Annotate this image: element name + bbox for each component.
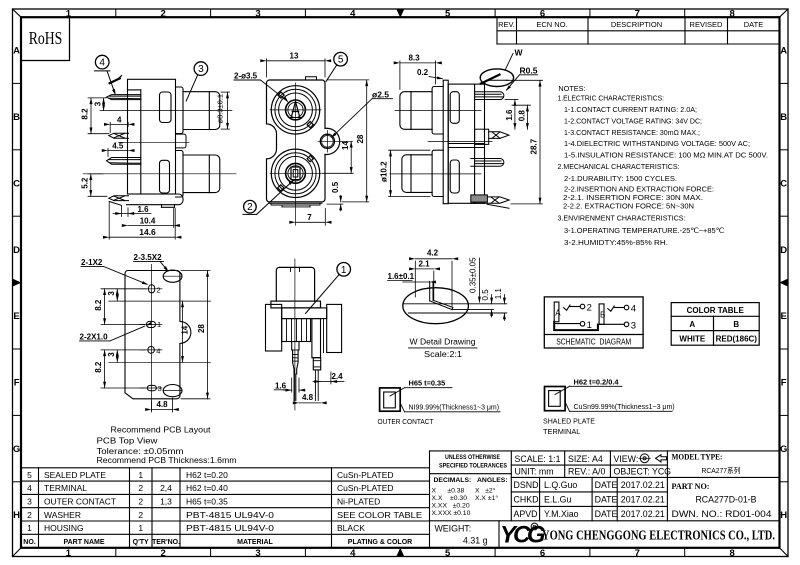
svg-text:A: A [13, 46, 20, 57]
svg-text:W Detail Drawing: W Detail Drawing [410, 337, 476, 346]
svg-text:1-2.CONTACT VOLTAGE RATING:: 1-2.CONTACT VOLTAGE RATING: 34V DC; [564, 116, 702, 125]
svg-text:B: B [780, 112, 787, 123]
svg-text:A: A [689, 320, 695, 329]
svg-text:X ±0.38: X ±0.38 [432, 487, 465, 494]
svg-text:G: G [780, 444, 787, 455]
svg-text:2: 2 [138, 510, 143, 520]
svg-text:5: 5 [27, 470, 32, 480]
svg-text:2-2X1.0: 2-2X1.0 [80, 333, 109, 342]
svg-text:3: 3 [107, 352, 116, 357]
svg-text:6: 6 [540, 548, 545, 559]
svg-text:VIEW:: VIEW: [614, 454, 639, 464]
svg-text:4: 4 [27, 483, 32, 493]
svg-text:CuSn-PLATED: CuSn-PLATED [337, 483, 394, 493]
svg-text:0.2: 0.2 [417, 68, 429, 77]
svg-text:3: 3 [158, 384, 162, 393]
svg-text:H62 t=0.2/0.4: H62 t=0.2/0.4 [574, 377, 620, 386]
svg-text:6: 6 [540, 8, 545, 19]
svg-text:APVD: APVD [514, 509, 538, 519]
svg-text:WEIGHT:: WEIGHT: [435, 524, 472, 534]
svg-text:2-1X2: 2-1X2 [81, 258, 103, 267]
svg-text:E.L.Gu: E.L.Gu [544, 495, 571, 505]
svg-text:3: 3 [107, 291, 116, 296]
svg-text:F: F [781, 378, 787, 389]
svg-text:Recommend PCB Layout: Recommend PCB Layout [111, 425, 212, 434]
svg-text:2-1.DURABILITY: 1500 CYCLES.: 2-1.DURABILITY: 1500 CYCLES. [564, 174, 677, 183]
svg-text:ø10.2: ø10.2 [380, 161, 389, 182]
svg-text:4.5: 4.5 [112, 142, 124, 151]
svg-text:R0.5: R0.5 [520, 66, 538, 76]
svg-text:7: 7 [307, 213, 312, 222]
svg-text:X.X ±1°: X.X ±1° [475, 494, 498, 502]
svg-text:1-5.INSULATION RESISTANCE: 1: 1-5.INSULATION RESISTANCE: 100 MΩ MIN.AT… [564, 151, 768, 160]
svg-text:Scale:2:1: Scale:2:1 [424, 350, 463, 359]
svg-text:1.1: 1.1 [494, 288, 503, 300]
svg-text:0.5: 0.5 [331, 181, 340, 193]
svg-text:TERMINAL: TERMINAL [543, 427, 580, 436]
svg-text:DESCRIPTION: DESCRIPTION [611, 20, 662, 29]
svg-text:WHITE: WHITE [679, 335, 705, 344]
svg-text:3: 3 [198, 64, 204, 75]
svg-text:PART NAME: PART NAME [63, 539, 104, 546]
svg-text:1: 1 [66, 548, 72, 559]
svg-text:UNLESS OTHERWISE: UNLESS OTHERWISE [445, 454, 500, 461]
svg-text:4: 4 [350, 8, 356, 19]
svg-text:7: 7 [635, 548, 640, 559]
svg-text:RCA277系列: RCA277系列 [702, 466, 741, 475]
svg-text:RED(186C): RED(186C) [716, 335, 758, 344]
svg-text:1.6: 1.6 [505, 109, 514, 121]
svg-text:H65 t=0.35: H65 t=0.35 [186, 497, 228, 507]
svg-text:PCB Top View: PCB Top View [97, 436, 158, 445]
svg-text:5: 5 [338, 55, 344, 66]
svg-text:MATERIAL: MATERIAL [237, 539, 273, 546]
svg-text:H: H [780, 510, 787, 521]
svg-text:H62 t=0.40: H62 t=0.40 [186, 483, 228, 493]
svg-text:DSND: DSND [514, 480, 539, 490]
svg-text:H62 t=0.20: H62 t=0.20 [186, 470, 228, 480]
svg-text:1-1.CONTACT CURRENT RATING:: 1-1.CONTACT CURRENT RATING: 2.0A; [564, 105, 697, 114]
svg-text:B: B [600, 311, 605, 320]
svg-text:1-3.CONTACT RESISTANCE: 30mΩ: 1-3.CONTACT RESISTANCE: 30mΩ MAX.; [564, 128, 700, 137]
svg-text:X.XX ±0.20: X.XX ±0.20 [432, 503, 470, 510]
svg-text:TERMINAL: TERMINAL [44, 483, 87, 493]
svg-text:28: 28 [197, 324, 206, 333]
svg-text:B: B [13, 112, 20, 123]
svg-text:4.2: 4.2 [427, 249, 439, 258]
svg-text:ø8.3±0.1: ø8.3±0.1 [216, 94, 225, 124]
svg-text:W: W [515, 48, 524, 58]
svg-text:DWN. NO.: RD01-004: DWN. NO.: RD01-004 [672, 509, 772, 519]
svg-text:SPECIFIED TOLERANCES: SPECIFIED TOLERANCES [439, 463, 507, 470]
svg-text:3: 3 [255, 548, 260, 559]
svg-text:2-2.2. EXTRACTION FORCE: 5N: 2-2.2. EXTRACTION FORCE: 5N~30N [563, 201, 694, 210]
svg-text:E: E [781, 311, 787, 322]
svg-text:REV.: A/0: REV.: A/0 [568, 466, 605, 476]
svg-text:4.8: 4.8 [302, 393, 314, 402]
svg-text:2017.02.21: 2017.02.21 [621, 509, 665, 519]
svg-text:CuSn99.99%(Thickness1~3 μm): CuSn99.99%(Thickness1~3 μm) [574, 404, 675, 411]
svg-text:2: 2 [161, 8, 166, 19]
svg-text:0.5: 0.5 [481, 289, 490, 301]
svg-text:C: C [13, 179, 20, 190]
svg-text:CHKD: CHKD [514, 495, 539, 505]
svg-text:1.6: 1.6 [137, 205, 149, 214]
svg-text:4.8: 4.8 [156, 400, 168, 409]
svg-text:RoHS: RoHS [29, 28, 63, 48]
svg-text:28.7: 28.7 [529, 138, 538, 154]
svg-text:1.ELECTRIC CHARACTERISTICS:: 1.ELECTRIC CHARACTERISTICS: [558, 93, 665, 102]
svg-text:X.XXX ±0.10: X.XXX ±0.10 [432, 510, 471, 517]
svg-text:1: 1 [341, 265, 347, 276]
svg-text:2: 2 [27, 510, 32, 520]
svg-text:SIZE: A4: SIZE: A4 [568, 454, 603, 464]
svg-text:8.3: 8.3 [408, 54, 420, 63]
svg-text:ECN NO.: ECN NO. [536, 20, 567, 29]
svg-text:2: 2 [138, 483, 143, 493]
svg-text:1.6±0.1: 1.6±0.1 [388, 272, 415, 281]
svg-text:2017.02.21: 2017.02.21 [621, 495, 665, 505]
svg-text:CuSn-PLATED: CuSn-PLATED [337, 470, 394, 480]
svg-text:1: 1 [27, 523, 32, 533]
svg-text:3.ENVIRENMENT CHARACTERISTICS: 3.ENVIRENMENT CHARACTERISTICS: [558, 214, 686, 223]
svg-text:WASHER: WASHER [44, 510, 81, 520]
svg-text:Tolerance: ±0.05mm: Tolerance: ±0.05mm [97, 447, 184, 456]
svg-text:14: 14 [341, 141, 350, 150]
svg-text:2: 2 [157, 285, 161, 294]
svg-text:2: 2 [138, 497, 143, 507]
svg-text:8: 8 [729, 8, 734, 19]
svg-text:H65 t=0.35: H65 t=0.35 [409, 379, 446, 388]
svg-text:2-ø3.5: 2-ø3.5 [234, 72, 258, 81]
svg-text:SCALE: 1:1: SCALE: 1:1 [515, 454, 561, 464]
svg-text:2,4: 2,4 [160, 483, 172, 493]
svg-text:UNIT: mm: UNIT: mm [515, 466, 554, 476]
svg-text:ANGLES:: ANGLES: [477, 477, 508, 484]
svg-text:MODEL TYPE:: MODEL TYPE: [672, 451, 723, 461]
svg-text:PLATING & COLOR: PLATING & COLOR [348, 539, 412, 546]
svg-text:NOTES:: NOTES: [558, 84, 585, 93]
svg-text:D: D [13, 245, 20, 256]
svg-text:SEALED PLATE: SEALED PLATE [44, 470, 106, 480]
svg-text:5: 5 [445, 8, 451, 19]
svg-text:13: 13 [290, 52, 299, 61]
svg-text:X ±2°: X ±2° [475, 486, 496, 494]
svg-text:8.2: 8.2 [94, 361, 103, 373]
svg-text:B: B [733, 320, 739, 329]
svg-text:Q'TY: Q'TY [133, 539, 149, 546]
svg-text:4: 4 [117, 115, 122, 124]
svg-text:4: 4 [156, 346, 160, 355]
svg-text:5: 5 [445, 548, 451, 559]
svg-text:0.35±0.05: 0.35±0.05 [469, 257, 478, 293]
svg-text:3: 3 [27, 497, 32, 507]
svg-text:DATE: DATE [744, 20, 763, 29]
svg-text:TER'NO.: TER'NO. [152, 539, 180, 546]
svg-text:PBT-4815 UL94V-0: PBT-4815 UL94V-0 [186, 523, 274, 533]
svg-text:4: 4 [631, 304, 636, 315]
svg-text:14: 14 [181, 325, 190, 334]
svg-text:5.2: 5.2 [81, 177, 90, 189]
svg-text:NO.: NO. [23, 539, 36, 546]
svg-text:2: 2 [587, 303, 592, 314]
svg-text:3-1.OPERATING TEMPERATURE.-25: 3-1.OPERATING TEMPERATURE.-25℃~+85℃ [564, 226, 724, 235]
svg-text:1.6: 1.6 [275, 381, 287, 390]
svg-text:RCA277D-01-B: RCA277D-01-B [695, 494, 756, 504]
svg-text:1-4.DIELECTRIC WITHSTANDING: 1-4.DIELECTRIC WITHSTANDING VOLTAGE: 500… [564, 139, 750, 148]
svg-text:DATE: DATE [595, 495, 618, 505]
svg-text:C: C [780, 179, 787, 190]
svg-text:HOUSING: HOUSING [44, 523, 84, 533]
svg-text:4.31 g: 4.31 g [463, 536, 488, 546]
svg-text:PBT-4815 UL94V-0: PBT-4815 UL94V-0 [186, 510, 274, 520]
svg-text:Ni-PLATED: Ni-PLATED [337, 497, 380, 507]
svg-text:SEE COLOR TABLE: SEE COLOR TABLE [337, 510, 422, 520]
svg-text:YONG CHENGGONG ELECTRONICS CO.: YONG CHENGGONG ELECTRONICS CO., LTD. [542, 529, 775, 544]
svg-text:3: 3 [255, 8, 260, 19]
svg-text:8.2: 8.2 [94, 299, 103, 311]
svg-text:PART NO:: PART NO: [672, 481, 710, 491]
svg-text:R: R [533, 525, 537, 531]
svg-text:3: 3 [93, 101, 102, 106]
svg-text:10.4: 10.4 [140, 216, 156, 225]
svg-text:7: 7 [635, 8, 640, 19]
svg-text:1: 1 [138, 523, 143, 533]
svg-text:DATE: DATE [595, 480, 618, 490]
svg-text:A: A [555, 309, 561, 318]
svg-text:2.1: 2.1 [418, 260, 430, 269]
svg-text:F: F [14, 378, 20, 389]
svg-text:28: 28 [356, 134, 365, 143]
svg-text:OUTER CONTACT: OUTER CONTACT [44, 497, 116, 507]
svg-text:1: 1 [587, 320, 592, 331]
svg-text:G: G [13, 444, 20, 455]
svg-text:1: 1 [138, 470, 143, 480]
svg-text:COLOR TABLE: COLOR TABLE [687, 306, 745, 315]
svg-text:OUTER CONTACT: OUTER CONTACT [378, 417, 434, 426]
svg-text:H: H [13, 510, 20, 521]
svg-text:2-3.5X2: 2-3.5X2 [134, 253, 163, 262]
svg-text:A: A [780, 46, 787, 57]
svg-text:SCHEMATIC DIAGRAM: SCHEMATIC DIAGRAM [556, 337, 631, 346]
svg-text:4: 4 [99, 58, 105, 69]
svg-text:2: 2 [161, 548, 166, 559]
svg-text:3-2.HUMIDTY:45%-85% RH.: 3-2.HUMIDTY:45%-85% RH. [564, 238, 668, 247]
svg-text:ø2.5: ø2.5 [372, 90, 389, 100]
svg-text:D: D [780, 245, 787, 256]
svg-text:OBJECT: YCG: OBJECT: YCG [614, 466, 672, 476]
svg-text:2.MECHANICAL CHARACTERISTICS:: 2.MECHANICAL CHARACTERISTICS: [558, 162, 680, 171]
svg-text:REVISED: REVISED [690, 20, 724, 29]
svg-text:SHALED PLATE: SHALED PLATE [543, 417, 595, 426]
svg-text:REV.: REV. [498, 20, 515, 29]
svg-text:8.2: 8.2 [81, 108, 90, 120]
svg-text:2.4: 2.4 [332, 372, 344, 381]
svg-text:DATE: DATE [595, 509, 618, 519]
svg-text:2: 2 [247, 202, 253, 213]
svg-text:BLACK: BLACK [337, 523, 365, 533]
svg-text:1: 1 [157, 320, 161, 329]
svg-text:Y.M.Xiao: Y.M.Xiao [544, 509, 579, 519]
svg-text:L.Q.Guo: L.Q.Guo [544, 480, 577, 490]
svg-text:1,3: 1,3 [160, 497, 172, 507]
svg-text:3: 3 [631, 321, 636, 332]
svg-text:X.X ±0.30: X.X ±0.30 [432, 495, 468, 502]
svg-text:2017.02.21: 2017.02.21 [621, 480, 665, 490]
svg-text:14.6: 14.6 [139, 227, 156, 237]
svg-text:4: 4 [350, 548, 356, 559]
svg-text:0.8: 0.8 [518, 110, 527, 122]
svg-text:DECIMALS:: DECIMALS: [434, 477, 472, 484]
svg-text:E: E [13, 311, 19, 322]
svg-text:8: 8 [729, 548, 734, 559]
svg-text:NI99.99%(Thickness1~3 μm): NI99.99%(Thickness1~3 μm) [409, 404, 500, 411]
svg-text:Recommend PCB Thickness:1.6m: Recommend PCB Thickness:1.6mm [97, 456, 237, 465]
